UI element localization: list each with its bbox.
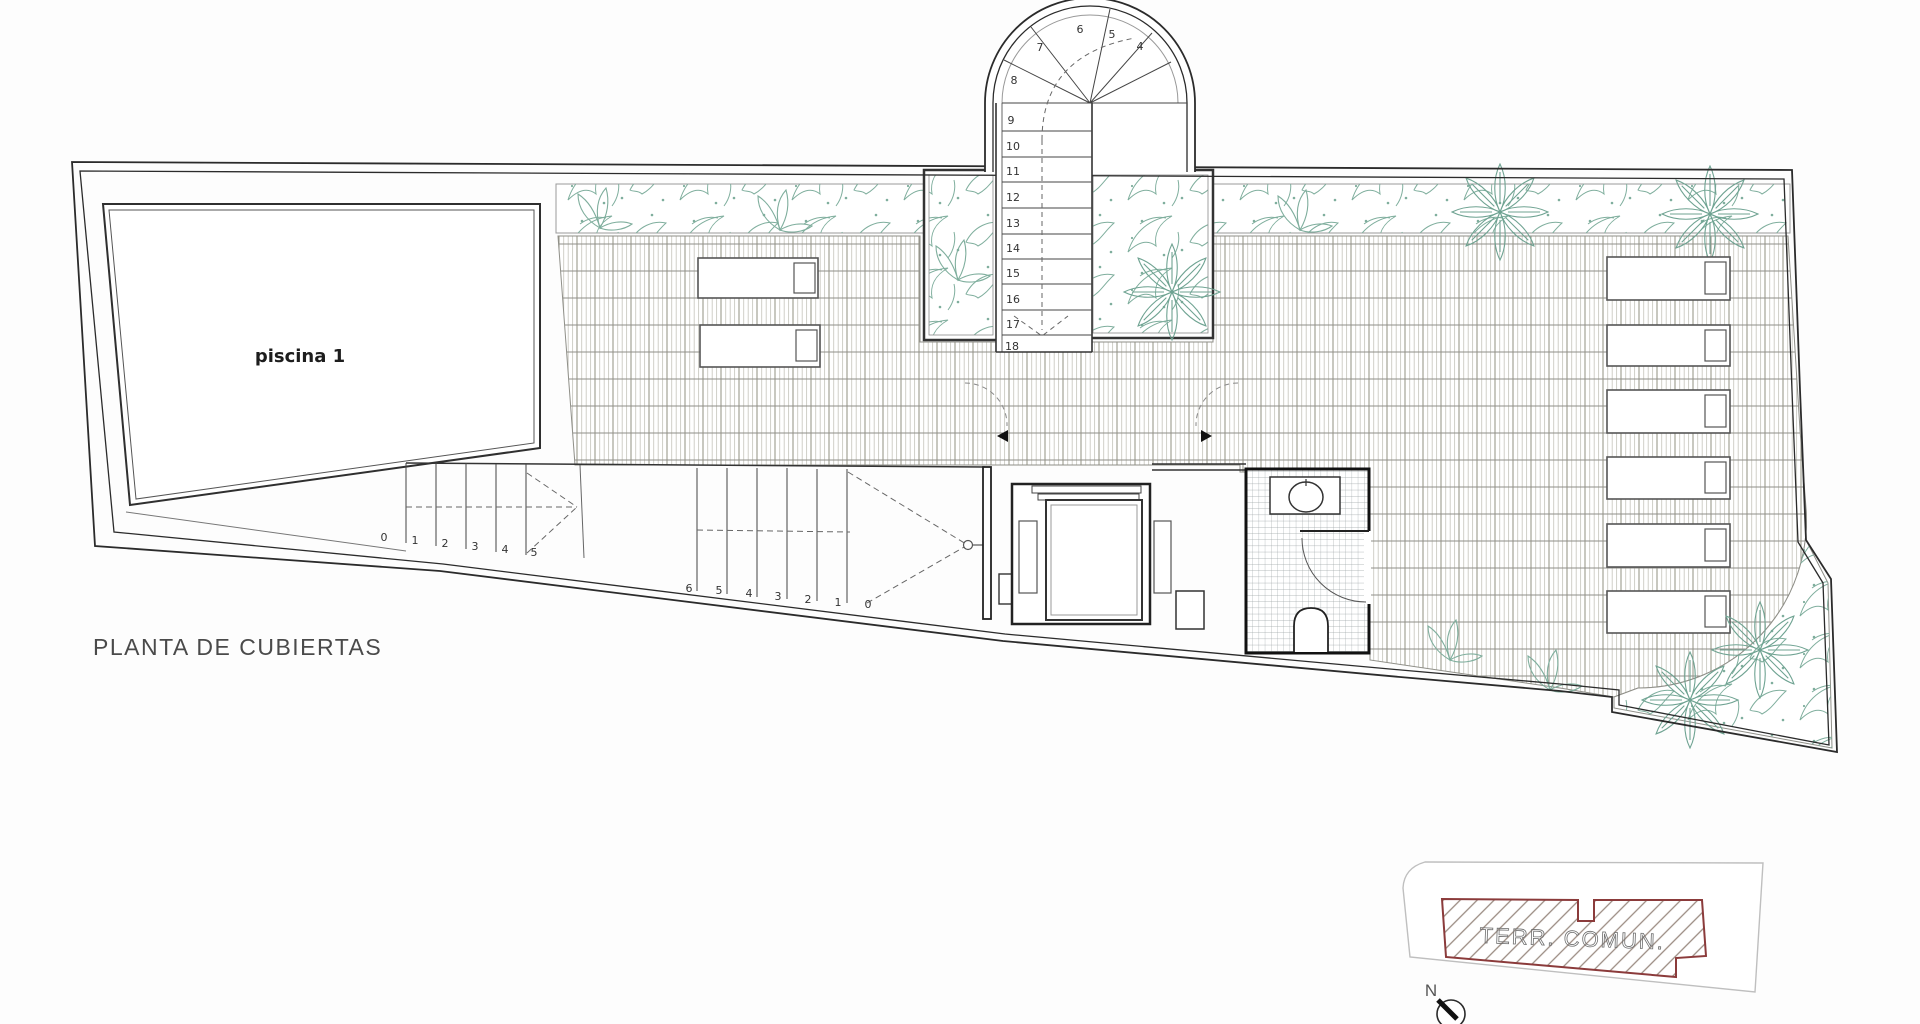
roof-plan-drawing: piscina 1 0 1 2 3 4 5 — [0, 0, 1920, 1024]
palm-icon — [1662, 166, 1758, 262]
stair-number: 4 — [502, 543, 509, 556]
lounger — [1607, 457, 1730, 499]
palm-icon — [1642, 652, 1738, 748]
lounger — [1607, 257, 1730, 300]
lounger — [1607, 524, 1730, 567]
drawing-title: PLANTA DE CUBIERTAS — [93, 634, 382, 660]
stair-number: 18 — [1005, 340, 1019, 353]
roof-vent — [1176, 591, 1204, 629]
stair-number: 0 — [865, 598, 872, 611]
stair-number: 8 — [1011, 74, 1018, 87]
stair-number: 6 — [1077, 23, 1084, 36]
stair-number: 7 — [1037, 41, 1044, 54]
palm-icon — [1124, 244, 1220, 340]
stair-number: 14 — [1006, 242, 1020, 255]
stair-number: 4 — [1137, 40, 1144, 53]
lounger — [1607, 591, 1730, 633]
roof-plan-page: piscina 1 0 1 2 3 4 5 — [0, 0, 1920, 1024]
stair-number: 9 — [1008, 114, 1015, 127]
stair-number: 1 — [835, 596, 842, 609]
stair-number: 0 — [381, 531, 388, 544]
stair-number: 11 — [1006, 165, 1020, 178]
bathroom — [1246, 469, 1371, 653]
pool: piscina 1 — [103, 204, 540, 551]
lounger — [700, 325, 820, 367]
stair-number: 5 — [1109, 28, 1116, 41]
stair-number: 16 — [1006, 293, 1020, 306]
stair-number: 15 — [1006, 267, 1020, 280]
elevator-room — [1012, 464, 1246, 629]
lounger — [1607, 325, 1730, 366]
elevator-shaft — [1046, 500, 1142, 620]
lounger — [1607, 390, 1730, 433]
stair-number: 6 — [686, 582, 693, 595]
stair-number: 5 — [531, 546, 538, 559]
planter-box-left — [924, 170, 998, 340]
planter-box-right — [1088, 170, 1220, 340]
stair-number: 13 — [1006, 217, 1020, 230]
stair-number: 2 — [805, 593, 812, 606]
stair-number: 1 — [412, 534, 419, 547]
stair-number: 3 — [775, 590, 782, 603]
north-label: N — [1425, 981, 1437, 1000]
palm-icon — [1712, 602, 1808, 698]
key-plan: TERR. COMUN. — [1403, 862, 1763, 992]
stair-number: 10 — [1006, 140, 1020, 153]
north-arrow: N — [1425, 981, 1465, 1024]
pool-label: piscina 1 — [255, 346, 345, 367]
stair-number: 3 — [472, 540, 479, 553]
sink-icon — [1289, 482, 1323, 512]
stair-number: 5 — [716, 584, 723, 597]
stair-number: 17 — [1006, 318, 1020, 331]
stair-number: 12 — [1006, 191, 1020, 204]
lounger — [698, 258, 818, 298]
toilet-icon — [1294, 608, 1328, 652]
stair-number: 4 — [746, 587, 753, 600]
stair-number: 2 — [442, 537, 449, 550]
